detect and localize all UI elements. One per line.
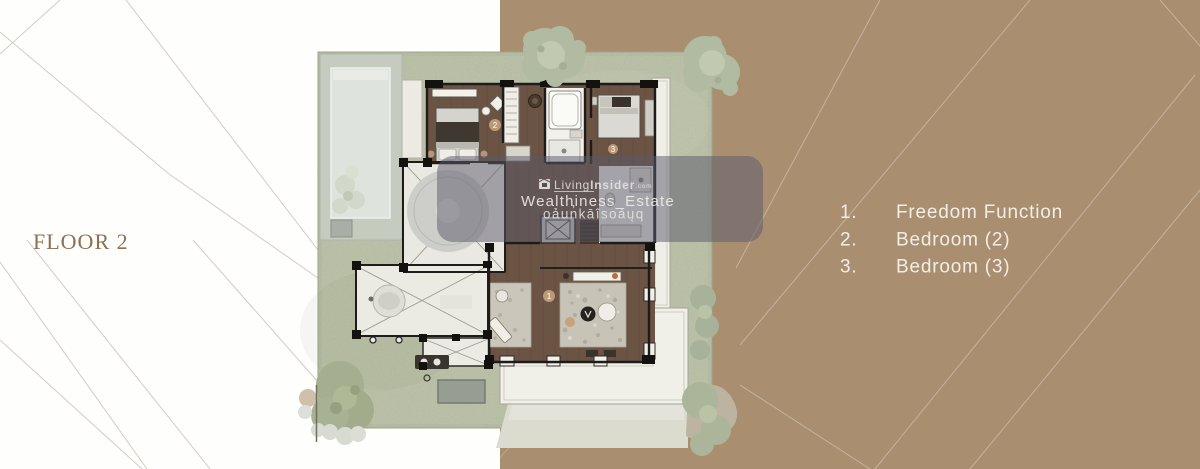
svg-text:1: 1 [547,291,552,301]
svg-text:2: 2 [493,121,498,130]
svg-text:oảun̓kāîsoảųq: oảun̓kāîsoảųq [543,205,645,222]
svg-text:3.: 3. [840,257,857,278]
svg-text:FLOOR 2: FLOOR 2 [33,229,129,254]
svg-text:1.: 1. [840,202,857,223]
svg-text:Bedroom (3): Bedroom (3) [896,257,1010,278]
svg-text:3: 3 [611,145,616,154]
svg-text:2.: 2. [840,230,857,251]
svg-text:Freedom Function: Freedom Function [896,202,1063,223]
svg-text:Bedroom (2): Bedroom (2) [896,230,1010,251]
